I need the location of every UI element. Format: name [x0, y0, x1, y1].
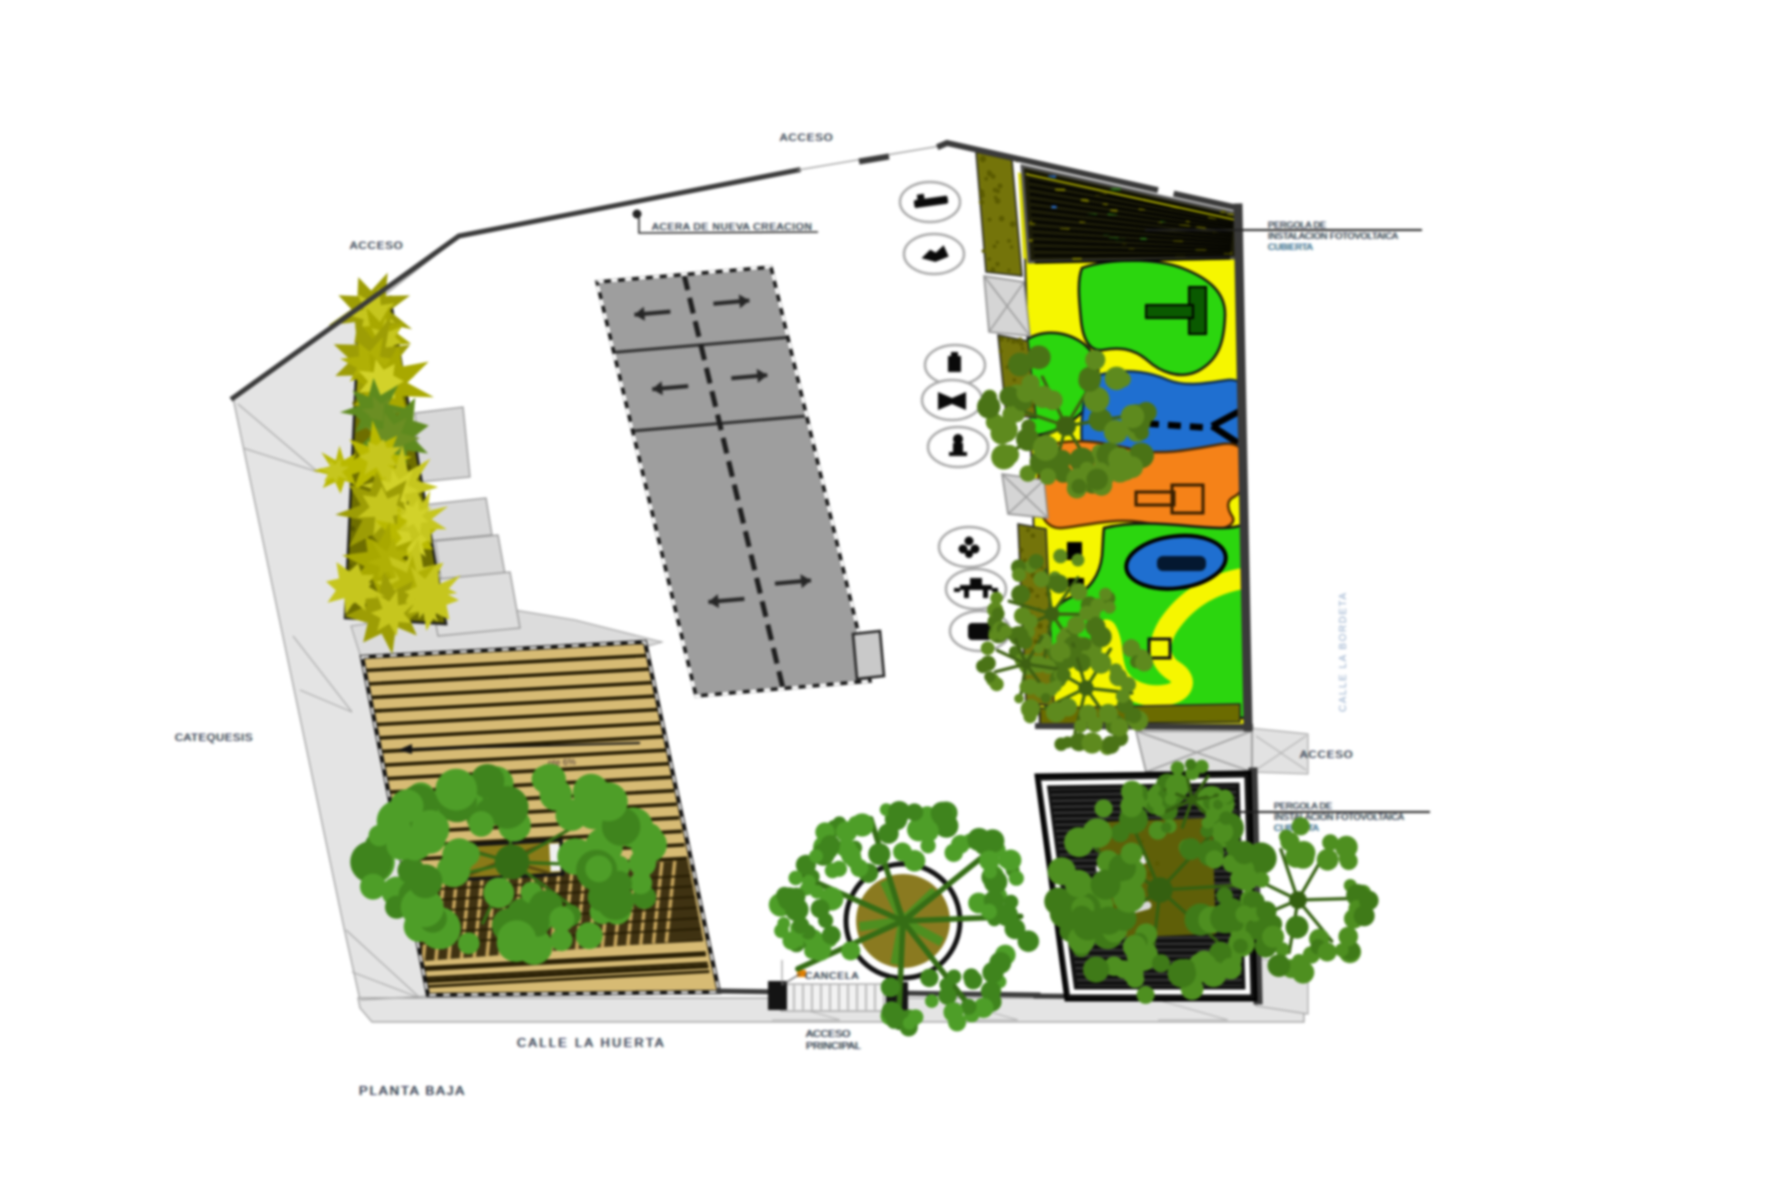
svg-text:ACCESO: ACCESO — [780, 132, 834, 144]
svg-text:PERGOLA DE: PERGOLA DE — [1268, 220, 1326, 230]
svg-text:ACCESO: ACCESO — [350, 240, 404, 252]
svg-text:INSTALACION FOTOVOLTAICA: INSTALACION FOTOVOLTAICA — [1268, 231, 1398, 241]
svg-text:ACERA DE NUEVA CREACION: ACERA DE NUEVA CREACION — [652, 222, 812, 233]
svg-text:ACCESO: ACCESO — [806, 1028, 850, 1040]
svg-text:PRINCIPAL: PRINCIPAL — [806, 1040, 861, 1052]
svg-text:CANCELA: CANCELA — [805, 971, 859, 982]
svg-text:INSTALACION FOTOVOLTAICA: INSTALACION FOTOVOLTAICA — [1274, 812, 1404, 822]
svg-text:PERGOLA DE: PERGOLA DE — [1274, 801, 1332, 811]
svg-text:CUBIERTA: CUBIERTA — [1268, 242, 1313, 252]
svg-text:CALLE LA HUERTA: CALLE LA HUERTA — [517, 1036, 666, 1050]
svg-text:CATEQUESIS: CATEQUESIS — [175, 732, 253, 744]
svg-text:CALLE LA BORDETA: CALLE LA BORDETA — [1338, 591, 1349, 712]
svg-text:PLANTA BAJA: PLANTA BAJA — [359, 1083, 466, 1098]
svg-text:ACCESO: ACCESO — [1300, 749, 1354, 761]
